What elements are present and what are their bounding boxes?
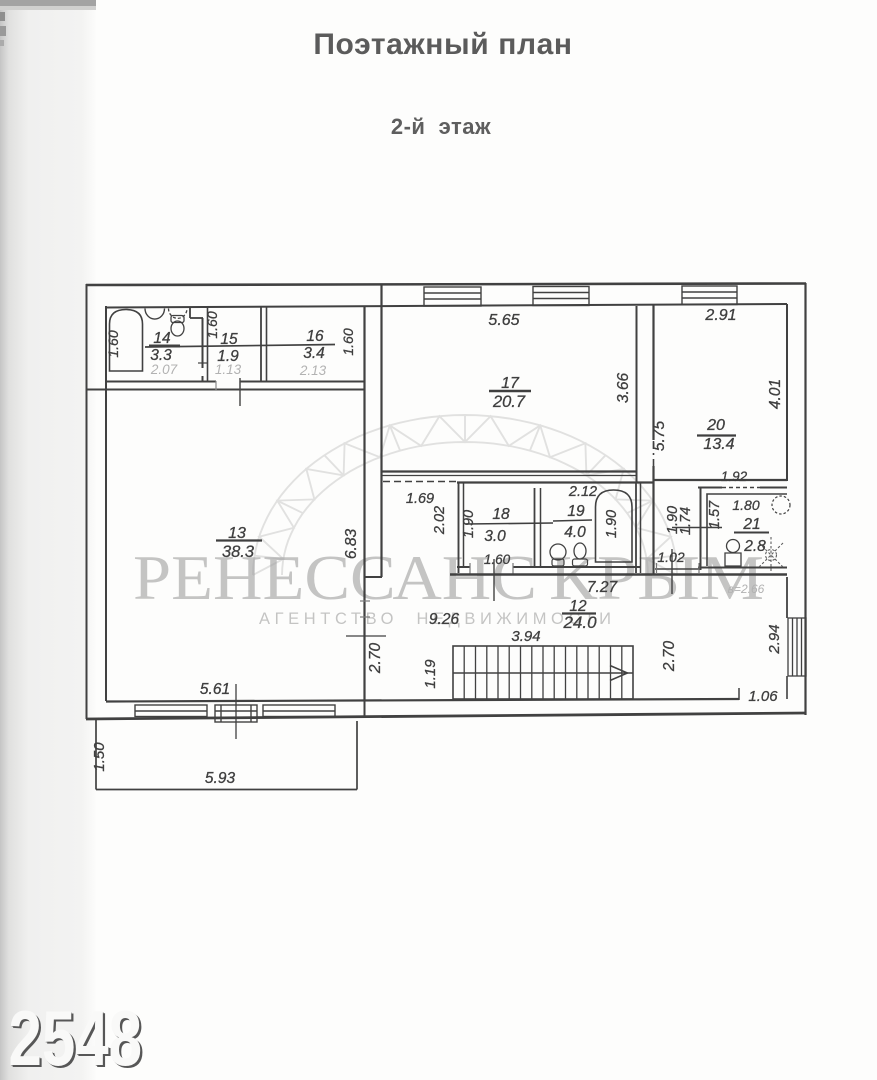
svg-text:1.50: 1.50 [91, 742, 108, 772]
svg-text:5.61: 5.61 [200, 681, 230, 698]
svg-text:5.65: 5.65 [488, 312, 519, 329]
svg-text:20.7: 20.7 [492, 393, 526, 411]
svg-text:1.60: 1.60 [340, 328, 356, 355]
svg-text:19: 19 [567, 503, 585, 520]
svg-text:1.90: 1.90 [604, 510, 620, 538]
svg-text:5.75: 5.75 [651, 421, 668, 452]
svg-text:38.3: 38.3 [222, 543, 255, 561]
svg-text:РЕНЕССАНС: РЕНЕССАНС [133, 542, 537, 613]
svg-text:2548: 2548 [8, 994, 142, 1080]
svg-text:1.60: 1.60 [105, 330, 121, 357]
svg-text:9.26: 9.26 [429, 611, 460, 628]
svg-text:1.57: 1.57 [707, 500, 723, 529]
svg-text:1.90: 1.90 [461, 510, 477, 538]
svg-text:3.94: 3.94 [511, 628, 540, 645]
svg-text:1.60: 1.60 [484, 552, 511, 567]
svg-text:2.8: 2.8 [743, 538, 766, 555]
svg-text:13.4: 13.4 [703, 436, 734, 453]
svg-text:1.60: 1.60 [204, 311, 220, 338]
svg-text:2.13: 2.13 [299, 363, 327, 378]
svg-text:21: 21 [742, 516, 760, 533]
svg-text:14: 14 [153, 330, 171, 347]
svg-text:2-й этаж: 2-й этаж [391, 114, 491, 139]
svg-text:7.27: 7.27 [587, 579, 619, 596]
svg-text:Поэтажный план: Поэтажный план [313, 28, 572, 61]
svg-text:16: 16 [306, 328, 324, 345]
svg-text:2.94: 2.94 [766, 624, 783, 654]
svg-text:3.0: 3.0 [484, 528, 506, 545]
svg-text:1.92: 1.92 [721, 469, 748, 484]
svg-text:4.01: 4.01 [767, 379, 784, 409]
svg-text:24.0: 24.0 [562, 613, 597, 632]
svg-text:2.12: 2.12 [568, 484, 597, 500]
svg-text:1.80: 1.80 [732, 497, 759, 513]
svg-text:20: 20 [706, 417, 725, 434]
svg-text:2.70: 2.70 [661, 641, 678, 673]
svg-text:4.0: 4.0 [564, 524, 586, 541]
svg-text:1.19: 1.19 [422, 659, 439, 689]
svg-text:18: 18 [492, 506, 510, 523]
svg-text:1.02: 1.02 [657, 549, 684, 565]
svg-text:3.66: 3.66 [615, 373, 632, 404]
svg-text:2.02: 2.02 [432, 506, 448, 535]
svg-text:17: 17 [501, 375, 520, 392]
svg-text:6.83: 6.83 [343, 529, 360, 560]
svg-text:1.06: 1.06 [748, 688, 778, 705]
svg-text:1.69: 1.69 [406, 491, 434, 507]
svg-text:в=2.66: в=2.66 [728, 582, 765, 596]
svg-text:2.91: 2.91 [704, 307, 736, 324]
svg-text:2.07: 2.07 [150, 362, 178, 377]
svg-text:15: 15 [220, 331, 238, 348]
svg-text:1.74: 1.74 [678, 507, 694, 535]
svg-text:5.93: 5.93 [205, 770, 236, 787]
svg-text:1.13: 1.13 [215, 362, 242, 377]
svg-text:3.4: 3.4 [303, 345, 325, 362]
svg-text:2.70: 2.70 [367, 643, 384, 675]
